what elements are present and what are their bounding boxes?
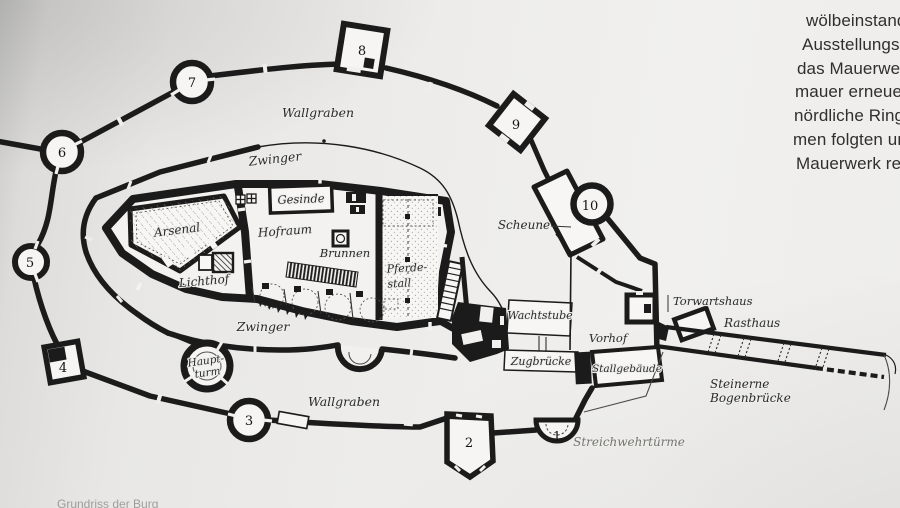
article-line: nördliche Ringm [794, 104, 900, 128]
label-scheune: Scheune [498, 218, 550, 232]
zwinger-post [322, 139, 326, 143]
label-bogenbruecke-1: Steinerne [710, 377, 769, 391]
brunnen-well [333, 231, 348, 246]
caption-text: Grundriss der Burg [57, 497, 357, 508]
tower-10-number: 10 [582, 199, 599, 214]
vorhof-sw-block [574, 352, 592, 385]
label-streichwehrtuerme: Streichwehrtürme [573, 435, 685, 449]
article-line: Mauerwerk repa [796, 152, 900, 176]
label-pferdestall-1: Pferde- [385, 261, 427, 276]
label-zwinger-top: Zwinger [247, 148, 303, 169]
tower-6-number: 6 [58, 146, 66, 161]
south-bastion [338, 345, 382, 369]
article-line: wölbeinstandse [806, 9, 900, 33]
label-pferdestall-2: stall [387, 276, 412, 290]
label-bogenbruecke-2: Bogenbrücke [709, 391, 791, 405]
small-room [199, 255, 212, 270]
article-line: Ausstellungsrau [802, 33, 900, 57]
label-gesinde: Gesinde [277, 191, 325, 207]
pferdestall-building [379, 193, 438, 320]
tower-9-number: 9 [512, 118, 520, 133]
tower-3-number: 3 [245, 414, 253, 429]
label-wallgraben-bottom: Wallgraben [308, 394, 380, 409]
rasthaus-building [674, 308, 713, 340]
tower-1-number: 1 [553, 430, 561, 445]
article-text-column: wölbeinstandse Ausstellungsrau das Mauer… [793, 9, 900, 176]
label-zugbruecke: Zugbrücke [510, 355, 572, 368]
caption-fragment: Grundriss der Burg [57, 497, 357, 508]
article-line: das Mauerwerk [797, 57, 900, 81]
tower-8-number: 8 [358, 44, 366, 59]
label-rasthaus: Rasthaus [723, 316, 780, 330]
article-line: men folgten und [793, 128, 900, 152]
label-zwinger-bottom: Zwinger [236, 319, 291, 334]
label-wachtstube: Wachtstube [507, 309, 573, 322]
stair-turret [213, 253, 233, 272]
label-stallgebaeude: Stallgebäude [592, 363, 662, 375]
castle-plan: Wallgraben Zwinger Gesinde Arsenal Hofra… [0, 0, 900, 508]
label-wallgraben-top: Wallgraben [282, 105, 354, 120]
wachtstube-connector [539, 336, 546, 352]
tower-4-number: 4 [59, 361, 67, 376]
tower-5-number: 5 [26, 256, 34, 271]
article-line: mauer erneuert, [795, 80, 900, 104]
tower-7-number: 7 [188, 76, 196, 91]
tower-2-number: 2 [465, 436, 473, 451]
vorhof-inner-wall [577, 257, 642, 291]
torwartshaus-building [627, 291, 668, 322]
label-torwartshaus: Torwartshaus [673, 294, 753, 308]
label-brunnen: Brunnen [319, 246, 370, 260]
label-vorhof: Vorhof [589, 331, 629, 345]
